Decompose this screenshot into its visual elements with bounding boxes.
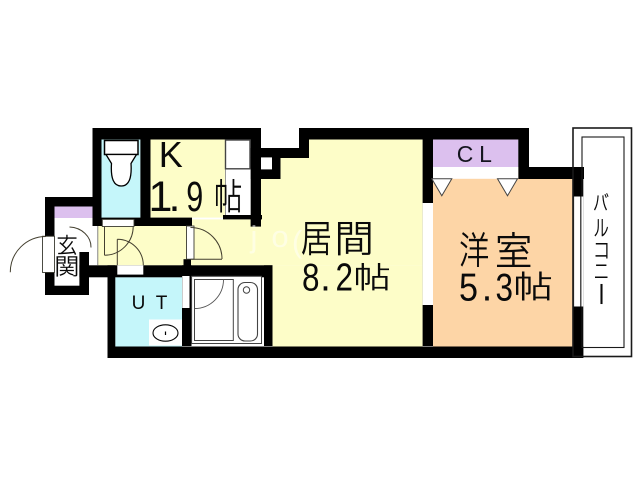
svg-text:9: 9 bbox=[186, 173, 203, 221]
svg-text:8: 8 bbox=[302, 257, 320, 300]
svg-text:T: T bbox=[156, 293, 168, 314]
svg-text:3: 3 bbox=[495, 267, 513, 310]
svg-text:U: U bbox=[132, 293, 146, 314]
svg-text:K: K bbox=[159, 134, 183, 175]
svg-text:(: ( bbox=[292, 224, 303, 259]
svg-text:L: L bbox=[479, 141, 492, 167]
svg-text:5: 5 bbox=[459, 267, 478, 310]
svg-text:.: . bbox=[169, 173, 181, 221]
svg-text:j: j bbox=[250, 219, 258, 254]
svg-text:o: o bbox=[271, 219, 288, 254]
svg-text:.: . bbox=[482, 267, 493, 310]
svg-text:.: . bbox=[320, 257, 331, 300]
svg-text:C: C bbox=[457, 141, 474, 167]
svg-text:2: 2 bbox=[335, 257, 353, 300]
